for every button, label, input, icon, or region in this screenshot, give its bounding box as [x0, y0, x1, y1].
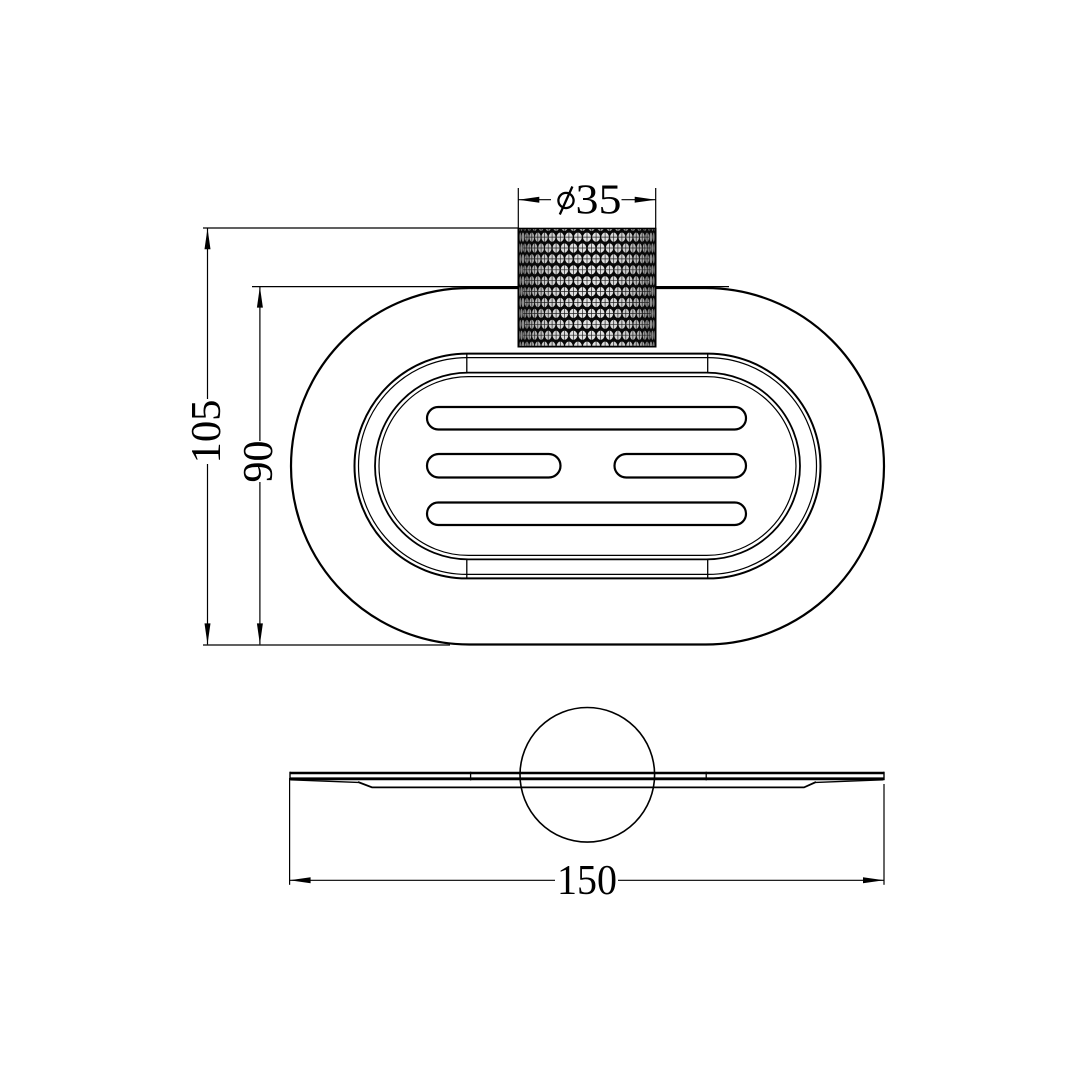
svg-text:90: 90 [236, 441, 282, 483]
svg-text:105: 105 [184, 400, 230, 464]
svg-text:35: 35 [576, 178, 622, 224]
svg-text:150: 150 [557, 858, 617, 904]
